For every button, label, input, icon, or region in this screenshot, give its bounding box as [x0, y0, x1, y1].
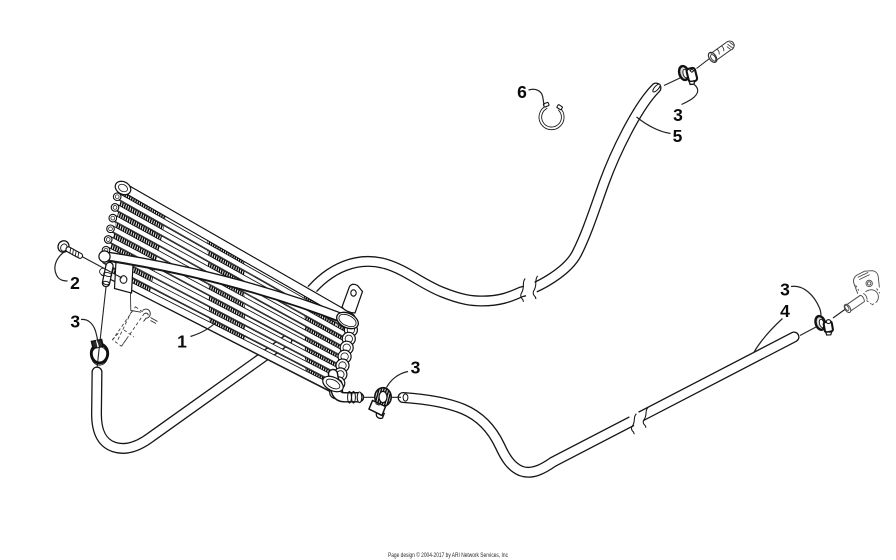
svg-text:5: 5 [673, 126, 683, 146]
svg-text:3: 3 [780, 280, 790, 300]
svg-text:3: 3 [70, 312, 80, 332]
svg-text:6: 6 [517, 82, 527, 102]
svg-text:2: 2 [70, 273, 80, 293]
svg-text:4: 4 [780, 301, 790, 321]
svg-text:3: 3 [411, 358, 421, 378]
svg-text:Page design © 2004-2017 by ARI: Page design © 2004-2017 by ARI Network S… [388, 552, 508, 559]
svg-text:3: 3 [673, 105, 683, 125]
svg-text:1: 1 [177, 332, 187, 352]
